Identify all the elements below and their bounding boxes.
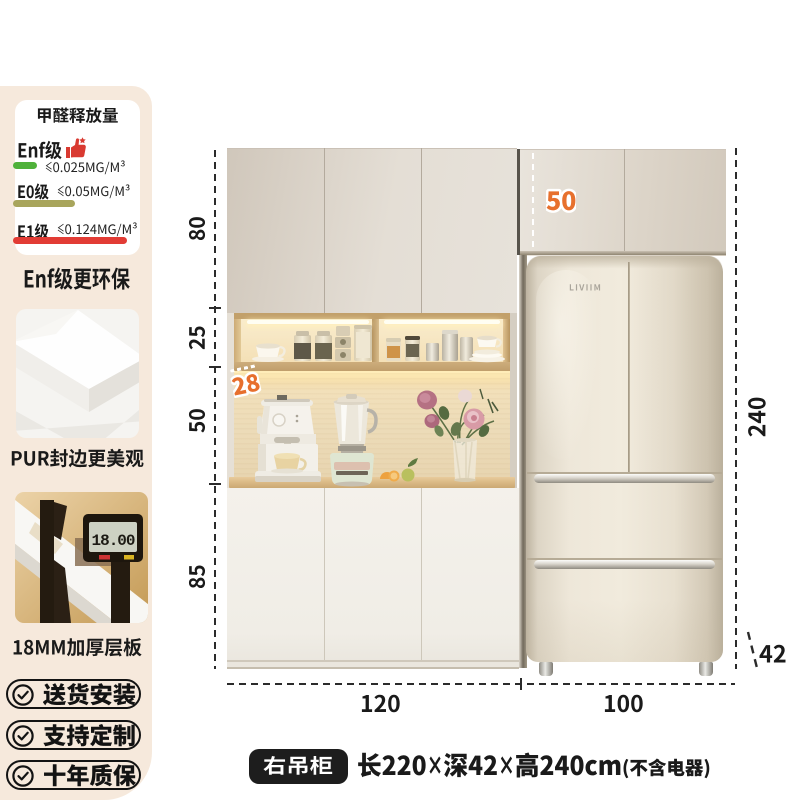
svg-text:18.00: 18.00 bbox=[91, 532, 134, 550]
